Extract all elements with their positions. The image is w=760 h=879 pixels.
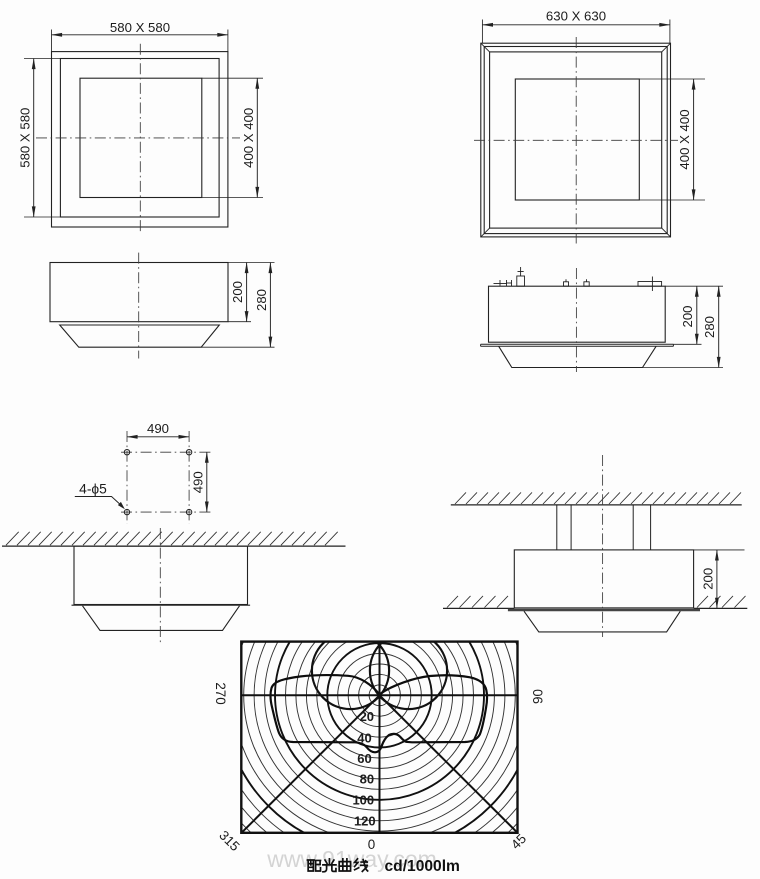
svg-text:4-ϕ5: 4-ϕ5 — [79, 482, 107, 497]
svg-text:400 X 400: 400 X 400 — [241, 108, 256, 168]
svg-text:270: 270 — [213, 682, 228, 704]
svg-text:60: 60 — [357, 751, 371, 766]
svg-text:80: 80 — [360, 771, 374, 786]
svg-text:90: 90 — [530, 689, 545, 704]
svg-text:400 X 400: 400 X 400 — [677, 109, 692, 169]
svg-text:cd/1000lm: cd/1000lm — [385, 858, 460, 875]
svg-text:280: 280 — [254, 289, 269, 311]
svg-text:120: 120 — [354, 813, 376, 828]
svg-text:20: 20 — [360, 709, 374, 724]
svg-text:100: 100 — [352, 792, 374, 807]
svg-text:580 X 580: 580 X 580 — [18, 108, 33, 168]
svg-text:630 X 630: 630 X 630 — [546, 9, 606, 24]
svg-text:40: 40 — [357, 730, 371, 745]
svg-text:580 X 580: 580 X 580 — [110, 20, 170, 35]
svg-text:490: 490 — [190, 471, 205, 493]
svg-text:200: 200 — [230, 281, 245, 303]
svg-text:280: 280 — [702, 316, 717, 338]
svg-text:200: 200 — [700, 568, 715, 590]
svg-text:200: 200 — [680, 305, 695, 327]
svg-text:490: 490 — [147, 421, 169, 436]
